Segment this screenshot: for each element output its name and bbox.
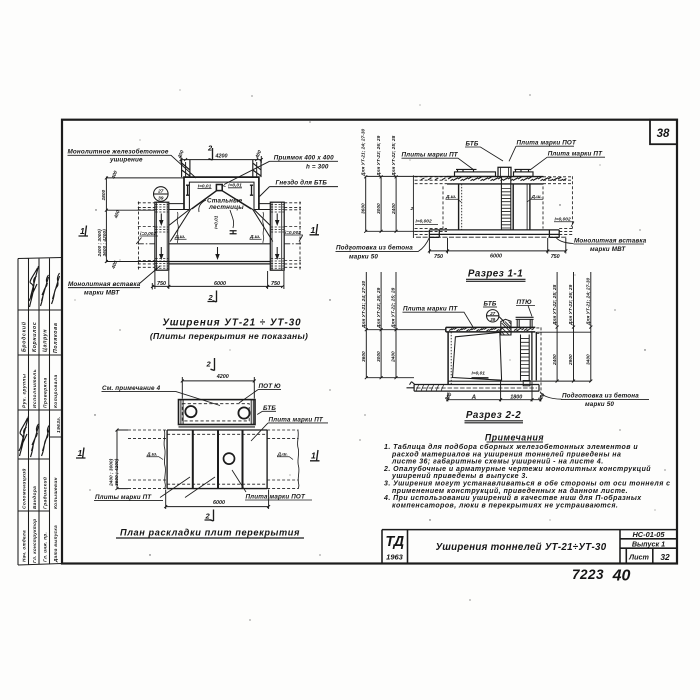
svg-text:Плита марки ПОТ: Плита марки ПОТ xyxy=(517,140,577,147)
svg-text:Полякова: Полякова xyxy=(53,322,59,353)
svg-text:Соломоницкий: Соломоницкий xyxy=(21,468,28,509)
svg-text:ПТЮ: ПТЮ xyxy=(517,299,533,306)
svg-text:1963: 1963 xyxy=(386,553,404,562)
svg-text:39: 39 xyxy=(158,196,164,202)
svg-text:38: 38 xyxy=(657,128,670,140)
svg-text:h = 300: h = 300 xyxy=(306,164,329,171)
svg-text:Плита марки ПОТ: Плита марки ПОТ xyxy=(246,494,306,501)
svg-text:Для УТ-23; 26; 29: Для УТ-23; 26; 29 xyxy=(376,287,382,329)
svg-text:2400: 2400 xyxy=(391,203,397,215)
svg-text:Градинский: Градинский xyxy=(42,477,49,509)
svg-text:2400 ; 3000): 2400 ; 3000) xyxy=(97,229,103,258)
svg-text:Монолитное железобетонное: Монолитное железобетонное xyxy=(68,148,169,156)
svg-text:применением конструкций, прив: применением конструкций, приведенных на … xyxy=(392,487,628,495)
svg-text:Для УТ-22; 25; 28: Для УТ-22; 25; 28 xyxy=(552,284,558,326)
svg-text:ПОТ Ю: ПОТ Ю xyxy=(259,383,282,390)
svg-text:листе 36; габаритные схемы: листе 36; габаритные схемы уширений - на… xyxy=(391,458,604,466)
svg-text:Бродский: Бродский xyxy=(21,321,28,352)
svg-text:32: 32 xyxy=(660,552,670,562)
svg-text:марки МВТ: марки МВТ xyxy=(590,246,626,253)
svg-text:3. Уширения могут устанавлив: 3. Уширения могут устанавливаться в обе … xyxy=(384,480,671,488)
svg-text:750: 750 xyxy=(434,254,443,260)
svg-text:уширение: уширение xyxy=(109,157,143,164)
svg-text:i=0,01: i=0,01 xyxy=(472,370,486,376)
svg-text:2400: 2400 xyxy=(391,351,397,363)
svg-text:Исполнитель: Исполнитель xyxy=(32,369,38,408)
svg-text:Для УТ-23; 26; 29: Для УТ-23; 26; 29 xyxy=(376,135,382,177)
svg-text:1: 1 xyxy=(311,225,316,235)
svg-text:Дата выпуска: Дата выпуска xyxy=(53,525,58,563)
svg-text:компенсаторов, люки в перек: компенсаторов, люки в перекрытиях не уст… xyxy=(392,502,618,509)
svg-text:План раскладки плит перекры: План раскладки плит перекрытия xyxy=(120,528,300,538)
svg-text:2: 2 xyxy=(207,144,213,153)
svg-text:Плита марки ПТ: Плита марки ПТ xyxy=(403,306,458,313)
svg-text:Корнилос: Корнилос xyxy=(32,322,38,352)
svg-text:Плита марки ПТ: Плита марки ПТ xyxy=(269,416,324,423)
svg-text:2400 ; 3000): 2400 ; 3000) xyxy=(109,458,115,487)
svg-text:1: 1 xyxy=(311,451,316,461)
svg-text:Рук. группы: Рук. группы xyxy=(22,373,28,408)
svg-text:Разрез 2-2: Разрез 2-2 xyxy=(466,410,521,421)
svg-text:Приямок 400 х 400: Приямок 400 х 400 xyxy=(274,155,334,162)
svg-text:Для УТ-21; 24; 27-30: Для УТ-21; 24; 27-30 xyxy=(361,128,367,177)
svg-text:1. Таблица для подбора сбор: 1. Таблица для подбора сборных железобет… xyxy=(384,443,638,451)
svg-text:НС-01-05: НС-01-05 xyxy=(632,530,665,539)
svg-text:См. примечание 4: См. примечание 4 xyxy=(102,385,161,392)
svg-text:2: 2 xyxy=(205,512,211,521)
svg-text:1: 1 xyxy=(78,448,83,458)
svg-text:1800: 1800 xyxy=(101,189,107,200)
svg-text:2900: 2900 xyxy=(568,354,574,366)
svg-text:Гл. конструктор: Гл. конструктор xyxy=(32,519,37,563)
svg-text:2. Опалубочные и арматурные: 2. Опалубочные и арматурные чертежи моно… xyxy=(383,465,651,473)
svg-text:7223: 7223 xyxy=(572,567,604,582)
svg-text:Проверяла: Проверяла xyxy=(43,377,49,408)
svg-text:1963г.: 1963г. xyxy=(56,416,62,433)
svg-text:ТД: ТД xyxy=(385,534,404,550)
svg-text:i=0,01: i=0,01 xyxy=(214,215,220,229)
svg-text:лестницы: лестницы xyxy=(208,204,244,211)
svg-text:6000: 6000 xyxy=(213,500,225,506)
svg-text:БТБ: БТБ xyxy=(263,405,276,412)
svg-text:4200: 4200 xyxy=(215,153,228,159)
svg-text:А: А xyxy=(471,394,477,401)
svg-text:Уширения УТ-21 ÷ УТ-30: Уширения УТ-21 ÷ УТ-30 xyxy=(162,318,301,329)
svg-text:2: 2 xyxy=(206,360,212,369)
svg-text:Для УТ-21; 24; 27-30: Для УТ-21; 24; 27-30 xyxy=(586,277,592,326)
svg-text:Подготовка из бетона: Подготовка из бетона xyxy=(336,244,413,252)
svg-text:40: 40 xyxy=(612,568,631,585)
svg-text:Копышевин: Копышевин xyxy=(53,477,59,509)
svg-text:27: 27 xyxy=(157,189,164,195)
svg-text:марки 50: марки 50 xyxy=(349,254,378,261)
svg-text:3600: 3600 xyxy=(361,203,367,214)
svg-text:3000: 3000 xyxy=(376,203,382,214)
svg-text:1800: 1800 xyxy=(510,395,522,401)
svg-text:4200: 4200 xyxy=(216,374,229,380)
svg-text:марки МВТ: марки МВТ xyxy=(84,290,120,297)
svg-text:Для УТ-22; 25; 28: Для УТ-22; 25; 28 xyxy=(391,135,397,177)
svg-text:Подготовка из бетона: Подготовка из бетона xyxy=(562,392,639,400)
svg-text:3000: 3000 xyxy=(376,351,382,362)
svg-text:Монолитная вставка: Монолитная вставка xyxy=(574,238,647,245)
svg-text:Копировала: Копировала xyxy=(53,374,59,408)
svg-text:3600: 3600 xyxy=(361,351,367,362)
svg-text:Уширения тоннелей УТ-21÷УТ-30: Уширения тоннелей УТ-21÷УТ-30 xyxy=(436,542,607,553)
svg-text:уширений приведены в выпуск: уширений приведены в выпуске 3. xyxy=(391,472,528,480)
svg-text:3600 ; 4200): 3600 ; 4200) xyxy=(102,229,108,257)
svg-text:Нач. отдела: Нач. отдела xyxy=(22,530,27,562)
svg-text:750: 750 xyxy=(271,281,280,287)
svg-text:Бандора: Бандора xyxy=(32,486,38,509)
svg-text:БТБ: БТБ xyxy=(466,140,479,147)
svg-text:Гнездо для БТБ: Гнездо для БТБ xyxy=(276,178,328,186)
svg-text:i=0,002: i=0,002 xyxy=(416,219,432,225)
svg-text:расход материалов на уширен: расход материалов на уширения тоннелей п… xyxy=(391,450,621,458)
svg-text:марки 50: марки 50 xyxy=(585,401,614,408)
svg-text:750: 750 xyxy=(157,281,166,287)
svg-text:Плиты марки ПТ: Плиты марки ПТ xyxy=(95,494,152,501)
svg-text:27: 27 xyxy=(489,311,495,316)
svg-text:1: 1 xyxy=(80,226,85,236)
svg-text:4. При использовании уширени: 4. При использовании уширений в качестве… xyxy=(383,494,642,502)
svg-text:Для УТ-23; 26; 29: Для УТ-23; 26; 29 xyxy=(568,284,574,326)
svg-text:Гл. инж. пр.: Гл. инж. пр. xyxy=(43,532,48,562)
svg-text:3400: 3400 xyxy=(586,354,592,365)
svg-text:Разрез 1-1: Разрез 1-1 xyxy=(468,269,523,280)
svg-text:3600 ; 4200): 3600 ; 4200) xyxy=(114,458,120,486)
svg-text:6000: 6000 xyxy=(490,254,502,260)
svg-text:6000: 6000 xyxy=(214,281,226,287)
svg-text:Цапрун: Цапрун xyxy=(43,329,49,352)
svg-text:2: 2 xyxy=(410,206,414,212)
svg-text:Плиты марки ПТ: Плиты марки ПТ xyxy=(402,152,459,159)
svg-text:Лист: Лист xyxy=(628,553,649,562)
svg-text:750: 750 xyxy=(551,254,560,260)
svg-text:Плита марки ПТ: Плита марки ПТ xyxy=(548,151,603,158)
svg-text:Монолитная вставка: Монолитная вставка xyxy=(68,281,141,288)
svg-text:39: 39 xyxy=(490,317,495,322)
svg-text:(Плиты перекрытия не показа: (Плиты перекрытия не показаны) xyxy=(150,331,308,341)
svg-text:Примечания: Примечания xyxy=(485,433,544,443)
svg-text:Выпуск 1: Выпуск 1 xyxy=(632,540,665,549)
svg-text:БТБ: БТБ xyxy=(484,300,497,307)
svg-text:Для УТ-22; 25; 28: Для УТ-22; 25; 28 xyxy=(391,287,397,329)
svg-text:Для УТ-21; 24; 27-30: Для УТ-21; 24; 27-30 xyxy=(361,280,367,329)
svg-text:2400: 2400 xyxy=(552,354,558,366)
